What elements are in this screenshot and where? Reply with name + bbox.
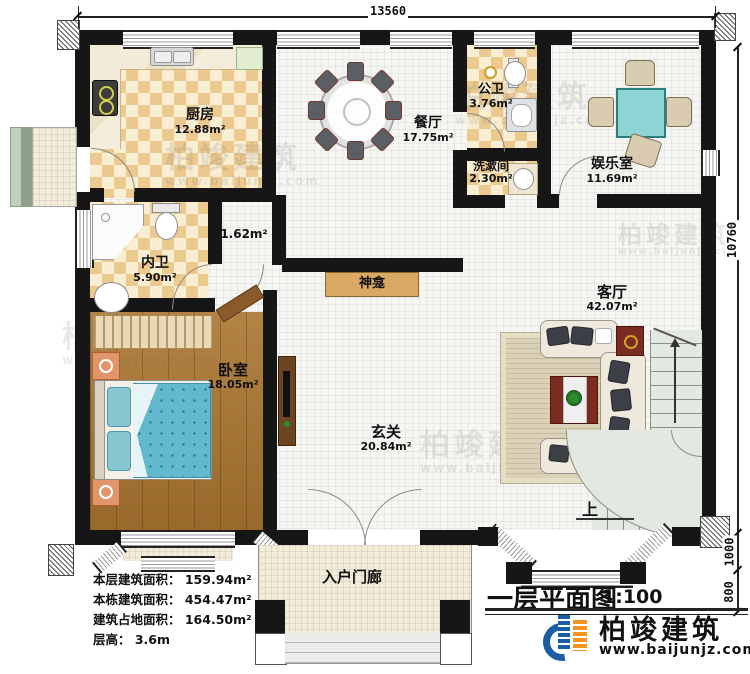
watermark: 柏竣建筑www.baijunjz.com — [618, 215, 742, 257]
floor-plan-canvas: 柏竣建筑www.baijunjz.com 柏竣建筑www.baijunjz.co… — [0, 0, 750, 674]
dining-chair-icon — [347, 141, 364, 160]
wall-segment — [360, 30, 390, 45]
bay-window — [121, 530, 235, 548]
window — [701, 150, 720, 176]
info-line-floor-area: 本层建筑面积： 159.94m² — [93, 570, 333, 590]
side-landing — [32, 127, 77, 207]
dimension-top: 13560 — [368, 4, 408, 18]
dimension-right: 10760 — [725, 220, 739, 260]
wall-kitchen-south — [134, 188, 276, 202]
wall-bedroom-east — [263, 290, 277, 530]
stairs-direction-line — [674, 345, 676, 423]
plan-scale: 1:100 — [602, 586, 662, 608]
burner — [99, 86, 114, 101]
pillow — [595, 328, 612, 344]
game-chair-icon — [588, 97, 614, 127]
side-steps — [10, 127, 34, 207]
sheet-fold — [132, 384, 158, 477]
stove-icon — [92, 80, 118, 116]
plant-icon — [284, 421, 290, 427]
bay-window-side — [92, 541, 127, 574]
up-underline — [576, 518, 634, 520]
watermark: 柏竣建筑www.baijunjz.com — [165, 133, 320, 188]
wall-segment — [701, 176, 716, 530]
wall-segment — [551, 194, 559, 208]
room-label-dining: 餐厅17.75m² — [378, 116, 478, 144]
room-label-toilet: 公卫3.76m² — [451, 83, 531, 110]
bay-pier — [620, 562, 646, 584]
wall-segment — [535, 30, 572, 45]
brand-url: www.baijunjz.com — [599, 642, 750, 658]
sink-basin — [154, 51, 172, 63]
lamp — [99, 359, 113, 373]
fridge-icon — [236, 47, 263, 70]
wall-segment — [75, 268, 90, 530]
corner-pier-hatch — [48, 544, 74, 576]
bay-pier — [672, 527, 700, 546]
mahjong-table-icon — [616, 88, 666, 138]
lamp — [99, 485, 113, 499]
info-line-height: 层高： 3.6m — [93, 630, 333, 650]
room-label-foyer: 玄关20.84m² — [336, 424, 436, 453]
porch-pier — [440, 600, 470, 633]
bay-pier — [478, 527, 498, 546]
room-label-innerbath: 内卫5.90m² — [105, 256, 205, 284]
table-center — [343, 98, 371, 126]
dimension-right-bottom: 800 — [722, 579, 736, 605]
window — [390, 30, 452, 49]
wall-segment — [420, 530, 487, 545]
window — [75, 210, 94, 268]
nightstand-icon — [92, 478, 120, 506]
dining-chair-icon — [347, 62, 364, 81]
cushion — [607, 359, 631, 384]
info-line-footprint: 建筑占地面积： 164.50m² — [93, 610, 333, 630]
extension-line — [78, 6, 79, 28]
dining-chair-icon — [308, 101, 325, 120]
wall-segment — [537, 195, 551, 208]
shrine-label: 神龛 — [359, 276, 385, 291]
wall-kitchen-east — [262, 45, 276, 198]
logo-tower-blue — [558, 615, 570, 651]
wall-segment — [701, 30, 716, 150]
towel-hook-icon — [484, 66, 497, 79]
window — [277, 30, 360, 49]
shrine-cabinet: 神龛 — [325, 272, 419, 297]
shower-head — [101, 213, 110, 222]
dimension-line — [737, 47, 739, 612]
logo-tower-orange — [573, 620, 587, 651]
end-table-icon — [616, 326, 644, 356]
pillow — [107, 431, 131, 471]
porch-pier-base — [440, 633, 472, 665]
wall-shrine — [282, 258, 463, 272]
wall-segment — [233, 30, 277, 45]
brand-logo-icon — [541, 613, 595, 663]
pillow — [107, 387, 131, 427]
cushion — [570, 326, 594, 346]
corner-pier-hatch — [714, 13, 736, 41]
room-label-corridor: 1.62m² — [204, 228, 284, 241]
room-label-kitchen: 厨房12.88m² — [150, 108, 250, 136]
blanket — [133, 383, 211, 478]
wall-washroom-south — [453, 195, 505, 208]
nightstand-icon — [92, 352, 120, 380]
watermark-text: 柏竣建筑 — [165, 141, 301, 176]
kitchen-sink-icon — [150, 47, 194, 66]
washbasin-icon — [94, 282, 129, 313]
cushion — [546, 326, 570, 347]
room-label-bedroom: 卧室18.05m² — [183, 362, 283, 391]
plant-icon — [566, 390, 582, 406]
wall-gameroom-west — [537, 45, 551, 195]
room-label-gameroom: 娱乐室11.69m² — [562, 157, 662, 185]
room-label-washroom: 洗漱间2.30m² — [447, 160, 535, 186]
toilet-icon — [155, 212, 178, 240]
info-line-total-area: 本栋建筑面积： 454.47m² — [93, 590, 333, 610]
coffee-table-icon — [550, 376, 598, 424]
game-chair-icon — [625, 60, 655, 86]
wall-gameroom-south — [597, 194, 716, 208]
fan-inner-arc — [671, 430, 702, 457]
bed-icon — [94, 380, 212, 480]
corner-pier-hatch — [57, 20, 80, 50]
cushion — [610, 388, 632, 412]
up-label: 上 — [582, 496, 598, 520]
tv-icon — [283, 371, 290, 417]
headboard — [95, 381, 105, 479]
wardrobe-icon — [93, 315, 213, 349]
sink-basin — [173, 51, 191, 63]
info-block: 本层建筑面积： 159.94m² 本栋建筑面积： 454.47m² 建筑占地面积… — [93, 570, 333, 650]
window — [572, 30, 699, 49]
room-label-living: 客厅42.07m² — [562, 284, 662, 313]
wall-segment — [75, 192, 90, 210]
window — [474, 30, 535, 49]
burner — [99, 100, 114, 115]
game-chair-icon — [666, 97, 692, 127]
wall-segment — [452, 30, 474, 45]
dimension-right-lower: 1000 — [722, 536, 736, 569]
